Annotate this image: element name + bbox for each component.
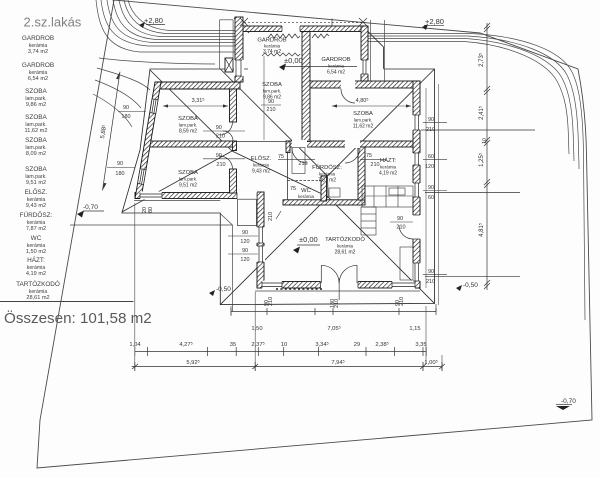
svg-text:8,59 m2: 8,59 m2 [179,129,197,135]
svg-text:11,62 m2: 11,62 m2 [25,128,48,134]
svg-text:HÁZT:: HÁZT: [27,255,45,264]
svg-text:9,51 m2: 9,51 m2 [26,180,46,186]
svg-text:180: 180 [121,114,130,120]
svg-text:210: 210 [396,225,405,231]
svg-text:-0,70: -0,70 [83,204,98,211]
svg-text:60: 60 [428,154,434,160]
svg-text:10: 10 [482,138,488,144]
svg-text:90: 90 [216,125,222,131]
svg-text:SZOBA: SZOBA [25,114,47,121]
svg-text:10: 10 [281,342,287,348]
svg-text:±0,00: ±0,00 [299,235,318,244]
svg-text:210: 210 [370,162,379,168]
svg-text:60: 60 [428,195,434,201]
svg-text:kerámia: kerámia [253,163,270,168]
svg-text:GARDROB: GARDROB [321,57,350,63]
svg-text:±0,00: ±0,00 [284,56,303,65]
svg-text:180: 180 [115,171,124,177]
svg-text:8,09 m2: 8,09 m2 [26,151,46,157]
svg-text:3,35: 3,35 [415,342,426,348]
svg-text:FÜRDŐSZ:: FÜRDŐSZ: [312,164,342,171]
svg-text:90: 90 [428,117,434,123]
svg-text:210: 210 [298,161,307,167]
svg-text:210: 210 [266,107,275,113]
svg-text:SZOBA: SZOBA [178,116,198,122]
svg-text:3,345: 3,345 [315,342,328,349]
svg-text:+2,80: +2,80 [425,17,444,26]
svg-text:90: 90 [216,153,222,159]
svg-text:SZOBA: SZOBA [25,88,47,95]
svg-text:210: 210 [216,162,225,168]
svg-text:90: 90 [242,230,248,236]
svg-text:SZOBA: SZOBA [178,170,198,176]
svg-text:210: 210 [268,212,274,221]
svg-text:29: 29 [354,342,360,348]
svg-text:+2,80: +2,80 [144,16,163,25]
svg-text:210: 210 [426,279,435,285]
svg-text:1,04: 1,04 [129,342,141,348]
svg-text:7,055: 7,055 [327,326,340,333]
svg-text:ELŐSZ.: ELŐSZ. [251,155,272,162]
svg-text:TARTÓZKODÓ: TARTÓZKODÓ [325,236,365,243]
svg-text:kerámia: kerámia [298,194,315,199]
svg-text:WC: WC [31,235,42,242]
svg-text:2,735: 2,735 [479,53,486,67]
svg-text:Összesen: 101,58 m2: Összesen: 101,58 m2 [4,309,152,327]
svg-text:1,005: 1,005 [424,360,437,367]
svg-text:90: 90 [242,248,248,254]
svg-text:2,385: 2,385 [375,342,388,349]
svg-text:6,54 m2: 6,54 m2 [327,70,345,76]
svg-text:9,43 m2: 9,43 m2 [252,169,270,175]
svg-text:SZOBA: SZOBA [262,82,282,88]
svg-text:28,61 m2: 28,61 m2 [26,295,49,301]
svg-text:ELŐSZ.: ELŐSZ. [25,187,48,196]
svg-text:lam.park.: lam.park. [263,89,282,94]
svg-text:-0,50: -0,50 [216,286,231,293]
svg-text:SZOBA: SZOBA [25,137,47,144]
svg-text:GARDROB: GARDROB [22,62,54,69]
svg-text:1,15: 1,15 [409,326,420,332]
svg-text:9,43 m2: 9,43 m2 [26,203,46,209]
svg-text:7,945: 7,945 [331,360,344,367]
svg-text:210: 210 [216,134,225,140]
svg-text:120: 120 [240,257,249,263]
svg-text:90: 90 [117,161,123,167]
svg-text:90: 90 [428,269,434,275]
svg-text:7,87 m2: 7,87 m2 [318,178,336,184]
svg-text:4,19 m2: 4,19 m2 [26,271,46,277]
svg-text:75: 75 [366,153,372,159]
svg-text:SZOBA: SZOBA [25,166,47,173]
svg-text:35: 35 [230,342,236,348]
svg-text:GARDROB: GARDROB [22,35,54,42]
svg-text:kerámia: kerámia [328,64,345,69]
svg-text:3,74 m2: 3,74 m2 [263,49,281,55]
svg-text:120: 120 [425,164,434,170]
svg-text:1,255: 1,255 [479,153,486,167]
svg-text:-0,70: -0,70 [561,398,576,405]
svg-text:80: 80 [148,207,154,213]
svg-text:lam.park.: lam.park. [354,118,373,123]
svg-text:75: 75 [278,154,284,160]
svg-text:120: 120 [240,239,249,245]
svg-text:kerámia: kerámia [319,172,336,177]
svg-text:28,61 m2: 28,61 m2 [335,250,356,256]
svg-text:9,86 m2: 9,86 m2 [26,102,46,108]
svg-text:4,275: 4,275 [179,342,192,349]
svg-text:FÜRDŐSZ:: FÜRDŐSZ: [20,210,53,219]
svg-text:1,50: 1,50 [251,326,262,332]
svg-text:lam.park.: lam.park. [179,123,198,128]
svg-text:kerámia: kerámia [380,165,397,170]
svg-text:90: 90 [428,185,434,191]
svg-text:5,925: 5,925 [186,360,199,367]
svg-text:210: 210 [399,297,405,306]
svg-text:7,87 m2: 7,87 m2 [26,226,46,232]
svg-text:HÁZT:: HÁZT: [380,157,396,164]
svg-text:TARTÓZKODÓ: TARTÓZKODÓ [16,279,60,288]
svg-text:90: 90 [123,105,129,111]
svg-text:-0,50: -0,50 [463,282,478,289]
svg-text:2,415: 2,415 [479,106,486,120]
svg-text:SZOBA: SZOBA [353,111,373,117]
svg-text:210: 210 [268,297,274,306]
svg-text:90: 90 [397,216,403,222]
svg-text:3,74 m2: 3,74 m2 [28,49,48,55]
svg-text:4,815: 4,815 [479,223,486,237]
svg-text:9,51 m2: 9,51 m2 [179,183,197,189]
svg-text:lam.park.: lam.park. [179,177,198,182]
svg-text:1,50 m2: 1,50 m2 [26,249,46,255]
svg-text:75: 75 [290,186,296,192]
svg-text:6,54 m2: 6,54 m2 [28,76,48,82]
svg-text:90: 90 [268,99,274,105]
svg-text:2,375: 2,375 [251,342,264,349]
svg-text:4,19 m2: 4,19 m2 [379,171,397,177]
svg-text:kerámia: kerámia [337,244,354,249]
svg-text:11,62 m2: 11,62 m2 [353,124,374,130]
svg-text:210: 210 [334,299,340,308]
svg-text:2.sz.lakás: 2.sz.lakás [24,15,82,30]
svg-text:kerámia: kerámia [264,44,281,49]
